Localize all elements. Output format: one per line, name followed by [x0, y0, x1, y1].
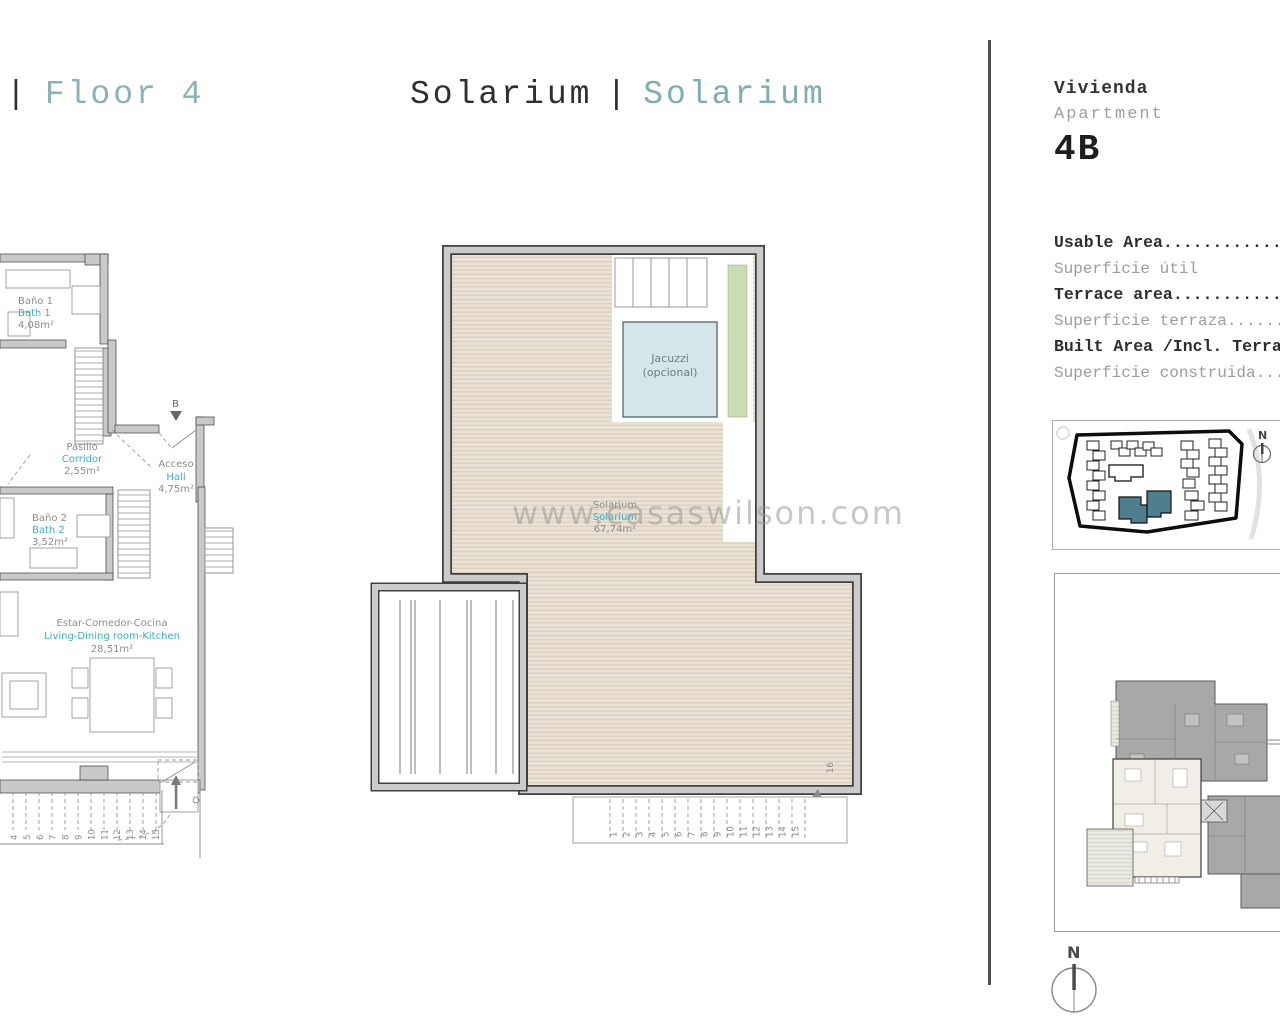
terrace-glazing [2, 752, 198, 762]
stair-head [615, 258, 707, 307]
apartment-terrace [1087, 829, 1133, 886]
hall-area: 4,75m² [158, 484, 194, 495]
pergola [375, 587, 523, 787]
apartment-label-en: Apartment [1054, 104, 1164, 125]
overview-panel [1054, 573, 1280, 932]
stair-step-number: 7 [688, 832, 698, 837]
bath2-label-en: Bath 2 [32, 525, 65, 536]
apartment-unit: 4B [1054, 127, 1164, 172]
stair-step-number: 7 [49, 835, 59, 840]
area-row-terrace-en: Terrace area.................... [1054, 282, 1280, 308]
stair-step-number: 4 [649, 832, 659, 837]
north-compass: N [1038, 942, 1118, 1024]
solarium-stairs: 123456789101112131415 [573, 797, 847, 843]
stair-step-number: 11 [740, 826, 750, 837]
stair-step-number: 6 [675, 832, 685, 837]
jacuzzi: Jacuzzi (opcional) [623, 322, 717, 417]
bath2-area: 3,52m² [32, 537, 68, 548]
stair-step-number: 13 [766, 826, 776, 837]
section-marker-b: B [170, 399, 182, 421]
area-row-built-es: Superficie construida....... [1054, 360, 1280, 386]
stair-step-number: 12 [113, 829, 123, 840]
wardrobe-closet [75, 348, 103, 444]
page-title-floor: |Floor 4 [6, 76, 204, 113]
stair-step-number: 8 [62, 835, 72, 840]
stair-step-number: 15 [792, 826, 802, 837]
stair-step-number: 5 [662, 832, 672, 837]
stair-step-number: 15 [152, 829, 162, 840]
bath1-label-en: Bath 1 [18, 308, 51, 319]
stair-step-number: 11 [100, 829, 110, 840]
stair-step-number: 14 [779, 826, 789, 837]
stair-step-number: 9 [714, 832, 724, 837]
planter-strip [728, 265, 747, 417]
jacuzzi-label-2: (opcional) [643, 366, 698, 379]
jacuzzi-label-1: Jacuzzi [650, 352, 689, 365]
section-marker-arrow-icon [170, 411, 182, 421]
page-title-solarium: Solarium|Solarium [410, 76, 826, 113]
area-table: Usable Area..................... Superfi… [1054, 230, 1280, 386]
balustrade [1135, 877, 1179, 883]
floor-title-label: Floor 4 [45, 76, 205, 113]
hall-label-es: Acceso [158, 459, 193, 470]
solarium-plan: Jacuzzi (opcional) Solarium Solarium 67,… [370, 240, 870, 865]
building-overview-plan [1055, 574, 1280, 929]
hall-closet [118, 490, 150, 578]
corridor-label-en: Corridor [62, 454, 103, 465]
stair-step-number: 10 [727, 826, 737, 837]
highlighted-buildings [1119, 491, 1171, 523]
corridor-area: 2,55m² [64, 466, 100, 477]
stair-step-number: 13 [126, 829, 136, 840]
bath2-label-es: Baño 2 [32, 513, 67, 524]
stair-step-number: 8 [701, 832, 711, 837]
area-row-built-en: Built Area /Incl. Terrace....... [1054, 334, 1280, 360]
road [1249, 429, 1260, 539]
highlighted-apartment [1087, 759, 1201, 886]
dining-table [90, 658, 154, 732]
stair-step-number: 9 [75, 835, 85, 840]
site-compass-n: N [1258, 429, 1267, 442]
stair-step-number: 12 [753, 826, 763, 837]
living-furniture [0, 592, 172, 732]
apartment-block: Vivienda Apartment 4B [1054, 78, 1164, 172]
living-area: 28,51m² [91, 644, 133, 655]
kitchen-window [205, 528, 233, 573]
area-row-terrace-es: Superficie terraza.......... [1054, 308, 1280, 334]
living-label-es: Estar-Comedor-Cocina [56, 618, 167, 629]
stair-step-number: 3 [636, 832, 646, 837]
stair-step-number: 1 [610, 832, 620, 837]
floor4-plan: 456789101112131415 B Baño 1 Bath 1 4,08m… [0, 240, 250, 860]
apartment-label-es: Vivienda [1054, 78, 1164, 101]
stair-step-number: 10 [87, 829, 97, 840]
solarium-title-en: Solarium [410, 76, 592, 113]
area-row-usable-en: Usable Area..................... [1054, 230, 1280, 256]
compass-needle-icon [1072, 964, 1076, 990]
hall-label-en: Hall [166, 472, 185, 483]
stair-step-number: 14 [139, 829, 149, 840]
stair-step-number: 5 [23, 835, 33, 840]
stair-step-16: 16 [826, 762, 836, 773]
lift-core [1201, 800, 1227, 822]
stair-step-number: 2 [623, 832, 633, 837]
stair-step-number: 6 [36, 835, 46, 840]
corridor-label-es: Pasillo [66, 442, 97, 453]
separator-line [988, 40, 991, 985]
floor4-stair-numbers: 456789101112131415 [10, 829, 162, 840]
compass-n-label: N [1067, 943, 1080, 962]
solarium-title-divider: | [606, 76, 629, 113]
bath1-label-es: Baño 1 [18, 296, 53, 307]
svg-text:B: B [172, 399, 179, 410]
plan-sheet: { "header": { "floor_divider": "|", "flo… [0, 0, 1280, 1024]
site-plan-panel: N [1052, 420, 1280, 550]
stair-step-number: 4 [10, 835, 20, 840]
site-plan-map: N [1053, 421, 1280, 547]
bath1-area: 4,08m² [18, 320, 54, 331]
solarium-title-es: Solarium [643, 76, 825, 113]
living-label-en: Living-Dining room-Kitchen [44, 631, 180, 642]
floor-title-divider: | [6, 76, 29, 113]
watermark: www.casaswilson.com [512, 494, 905, 532]
area-row-usable-es: Superficie útil [1054, 256, 1280, 282]
